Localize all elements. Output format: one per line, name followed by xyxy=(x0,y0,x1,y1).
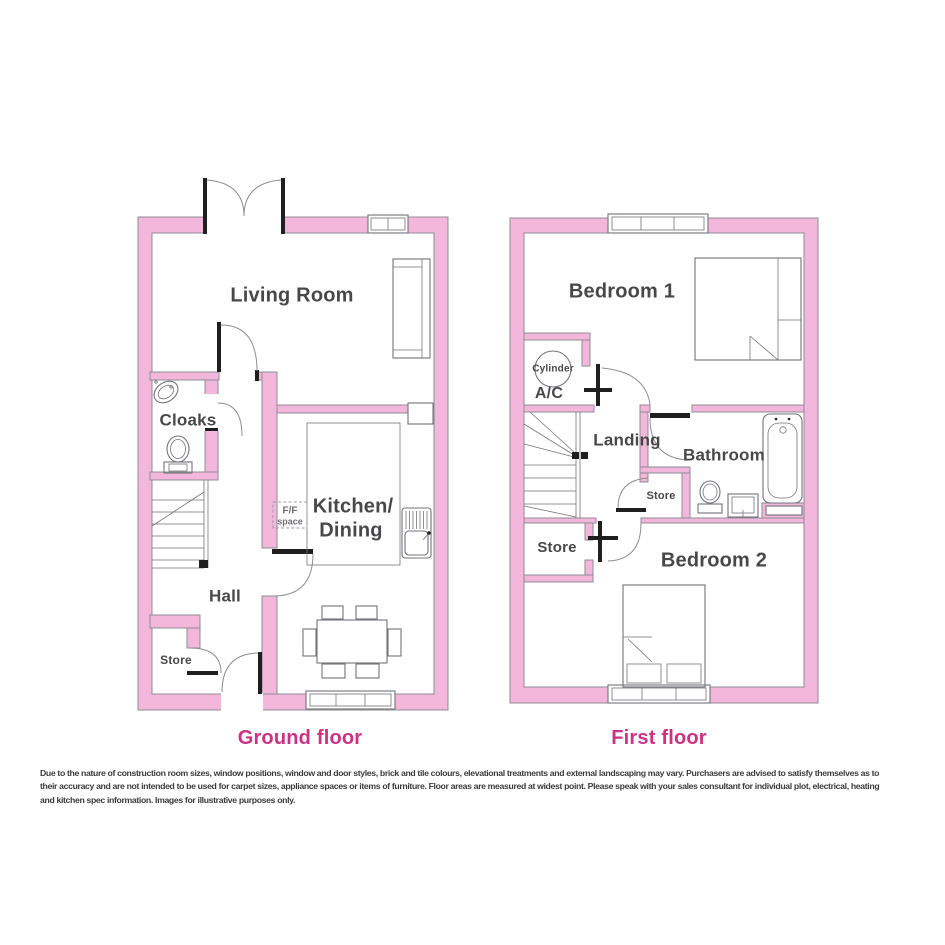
bed1-icon xyxy=(695,258,801,360)
toilet-icon xyxy=(698,481,722,513)
room-label-bedroom2: Bedroom 2 xyxy=(661,549,767,571)
kitchen-window-icon xyxy=(306,691,395,709)
store-small-door-icon xyxy=(616,478,648,512)
cloaks-basin-icon xyxy=(150,377,182,407)
room-label-landing: Landing xyxy=(593,430,661,449)
room-label-kitchen-line2: Dining xyxy=(319,519,382,541)
bedroom2-door-icon xyxy=(608,523,641,561)
sofa-icon xyxy=(393,259,430,358)
room-label-living-room: Living Room xyxy=(230,284,353,306)
front-door-icon xyxy=(222,652,262,694)
first-floor-plan: Bedroom 1 Cylinder A/C Landing Bathroom … xyxy=(510,214,818,703)
stairs-first-icon xyxy=(524,412,588,518)
stairs-icon xyxy=(152,480,208,568)
french-door-opening xyxy=(204,215,284,235)
room-label-cloaks: Cloaks xyxy=(160,410,217,429)
ac-cupboard-door-icon xyxy=(584,364,650,406)
store-door-icon xyxy=(187,648,221,675)
label-cylinder: Cylinder xyxy=(532,364,574,375)
boiler-cupboard-icon xyxy=(408,403,433,424)
first-floor-caption: First floor xyxy=(611,727,707,750)
disclaimer-line-1: Due to the nature of construction room s… xyxy=(40,767,920,780)
bathtub-icon xyxy=(763,414,802,503)
room-label-store-ground: Store xyxy=(160,653,192,667)
room-label-store-small: Store xyxy=(646,490,675,502)
dining-table-icon xyxy=(303,606,401,678)
living-room-door-icon xyxy=(217,322,259,381)
bed2-icon xyxy=(623,585,705,687)
room-label-hall: Hall xyxy=(209,586,241,605)
room-label-kitchen-line1: Kitchen/ xyxy=(313,495,394,517)
bedroom2-window-icon xyxy=(608,685,710,703)
basin-icon xyxy=(728,494,758,517)
bedroom1-window-icon xyxy=(608,214,708,233)
living-room-window-icon xyxy=(368,215,408,233)
airing-slot xyxy=(766,506,802,515)
cloaks-toilet-icon xyxy=(164,436,192,473)
disclaimer-line-2: their accuracy and are not intended to b… xyxy=(40,780,920,793)
room-label-store-first: Store xyxy=(537,539,576,556)
label-ac: A/C xyxy=(535,385,563,402)
floorplan-page: Living Room Cloaks Hall Store Kitchen/ D… xyxy=(0,0,945,945)
label-ff: F/F xyxy=(283,506,298,517)
ground-floor-plan: Living Room Cloaks Hall Store Kitchen/ D… xyxy=(138,178,448,711)
room-label-bathroom: Bathroom xyxy=(683,445,765,464)
front-door-opening xyxy=(221,693,263,711)
ground-floor-caption: Ground floor xyxy=(238,727,363,750)
label-ff-space: space xyxy=(277,516,303,526)
disclaimer-text: Due to the nature of construction room s… xyxy=(40,767,920,807)
sink-icon xyxy=(402,508,431,558)
disclaimer-line-3: and kitchen spec information. Images for… xyxy=(40,794,920,807)
room-label-bedroom1: Bedroom 1 xyxy=(569,280,675,302)
